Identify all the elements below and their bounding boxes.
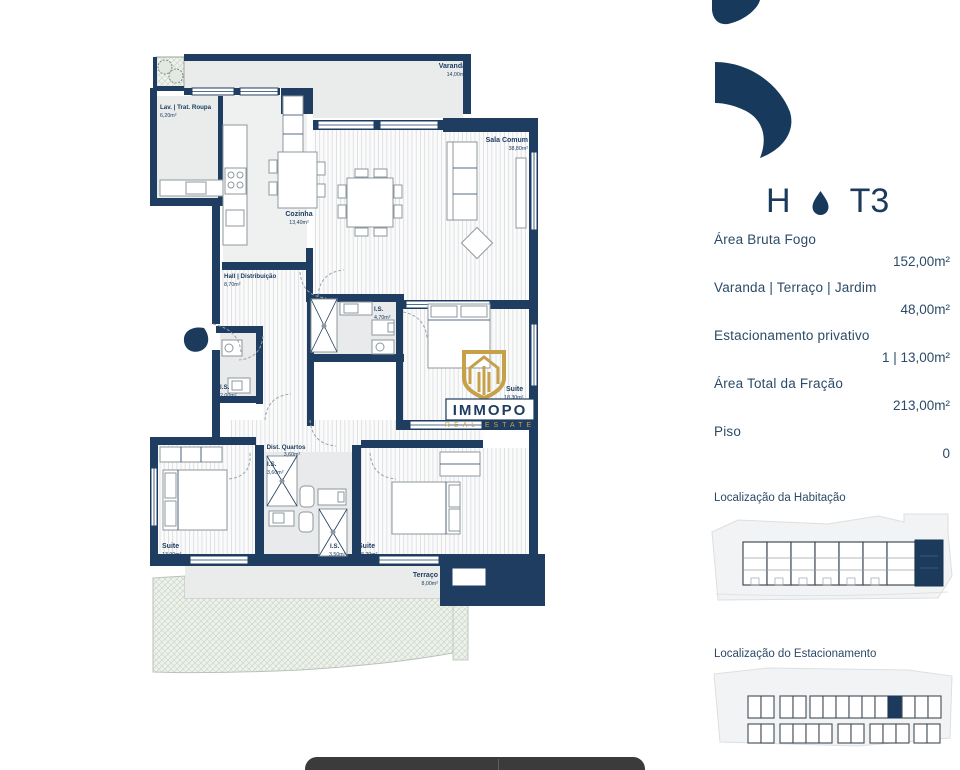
planter-box (153, 57, 184, 91)
room-label-cozinha: Cozinha (285, 211, 312, 218)
detail-row-area-bruta: Área Bruta Fogo 152,00m² (714, 232, 950, 269)
detail-row-area-total: Área Total da Fração 213,00m² (714, 376, 950, 413)
detail-label: Estacionamento privativo (714, 328, 950, 343)
droplet-icon (811, 190, 830, 217)
highlighted-parking-stall (888, 696, 902, 718)
bottom-toolbar[interactable] (305, 757, 645, 770)
room-label-suite1390: Suite (162, 543, 179, 550)
room-label-terraco: Terraço (413, 572, 438, 579)
svg-text:3,50m²: 3,50m² (329, 552, 346, 558)
room-label-sala: Sala Comum (486, 137, 528, 144)
svg-text:14,00m²: 14,00m² (447, 72, 467, 78)
room-label-suite1820: Suite (358, 543, 375, 550)
detail-row-piso: Piso 0 (714, 424, 950, 461)
svg-text:6,20m²: 6,20m² (160, 113, 177, 119)
toolbar-divider (498, 759, 499, 770)
detail-value: 152,00m² (714, 254, 950, 269)
estacionamento-section-title: Localização do Estacionamento (714, 648, 876, 660)
watermark-tagline: REAL ESTATE (445, 422, 535, 429)
svg-text:13,40m²: 13,40m² (289, 220, 309, 226)
detail-label: Varanda | Terraço | Jardim (714, 280, 950, 295)
brand-comma-mark (706, 0, 802, 166)
detail-value: 48,00m² (714, 302, 950, 317)
corridor-floor (263, 326, 307, 422)
room-label-hall: Hall | Distribuição (224, 273, 276, 280)
svg-text:3,60m²: 3,60m² (284, 452, 301, 458)
svg-text:2,00m²: 2,00m² (220, 393, 237, 399)
room-label-dist: Dist. Quartos (267, 444, 306, 451)
detail-value: 1 | 13,00m² (714, 350, 950, 365)
svg-text:38,80m²: 38,80m² (509, 146, 529, 152)
property-sheet-page: Varanda 14,00m² Lav. | Trat. Roupa 6,20m… (0, 0, 960, 770)
habitacao-location-map (708, 506, 956, 608)
svg-text:3,60m²: 3,60m² (267, 470, 284, 476)
unit-letter: H (766, 184, 791, 218)
entry-droplet-icon (184, 327, 208, 351)
room-label-is350: I.S. (330, 543, 340, 550)
unit-typology-header: H T3 (766, 184, 916, 218)
detail-row-varanda-terraco: Varanda | Terraço | Jardim 48,00m² (714, 280, 950, 317)
detail-row-estacionamento: Estacionamento privativo 1 | 13,00m² (714, 328, 950, 365)
highlighted-house-unit (915, 540, 943, 586)
detail-value: 0 (714, 446, 950, 461)
detail-value: 213,00m² (714, 398, 950, 413)
svg-text:8,70m²: 8,70m² (224, 282, 241, 288)
svg-text:18,20m²: 18,20m² (358, 552, 378, 558)
room-label-lav: Lav. | Trat. Roupa (160, 104, 212, 111)
room-label-suite1830: Suite (506, 386, 523, 393)
house-units (743, 540, 943, 586)
detail-label: Área Total da Fração (714, 376, 950, 391)
room-label-varanda: Varanda (439, 63, 466, 70)
terraco-floor (185, 566, 440, 598)
svg-text:8,00m²: 8,00m² (422, 581, 439, 587)
room-label-is360: I.S. (267, 461, 277, 468)
detail-label: Piso (714, 424, 950, 439)
typology-label: T3 (850, 184, 890, 218)
room-label-is470: I.S. (374, 306, 384, 313)
habitacao-section-title: Localização da Habitação (714, 492, 846, 504)
estacionamento-location-map (708, 660, 956, 752)
room-label-is200: I.S. (220, 384, 230, 391)
svg-text:4,70m²: 4,70m² (374, 315, 391, 321)
svg-text:13,90m²: 13,90m² (162, 552, 182, 558)
watermark-brand: IMMOPO (453, 402, 528, 419)
detail-label: Área Bruta Fogo (714, 232, 950, 247)
